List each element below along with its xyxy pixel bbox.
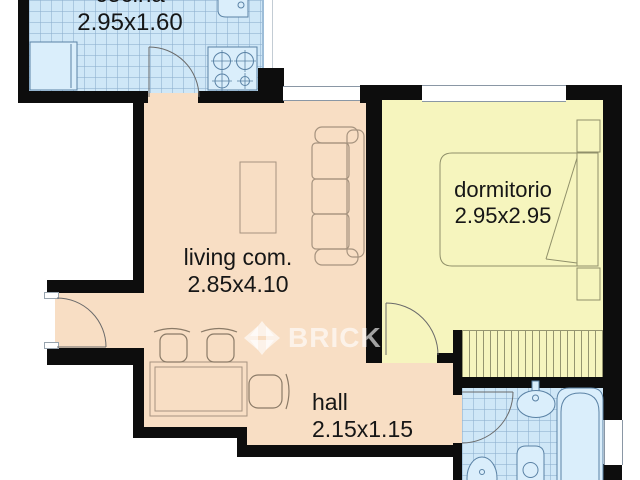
window-living-icon <box>283 86 360 101</box>
brand-logo-icon <box>243 320 281 356</box>
wall <box>133 365 144 435</box>
room-label-living: living com. 2.85x4.10 <box>158 244 318 297</box>
room-dimensions: 2.85x4.10 <box>158 271 318 298</box>
room-label-dormitorio: dormitorio 2.95x2.95 <box>423 177 583 228</box>
wall <box>243 445 462 457</box>
wall <box>47 280 144 293</box>
wall <box>603 464 622 480</box>
brand-name: BRICK <box>288 322 382 354</box>
floor-bathroom <box>462 387 603 480</box>
door-jamb <box>44 292 59 299</box>
wall <box>603 88 622 420</box>
room-name: dormitorio <box>454 177 552 202</box>
brand-watermark: BRICK <box>243 320 382 356</box>
wall <box>18 91 148 103</box>
room-name: cocina <box>95 0 164 8</box>
floor-entry-nook <box>55 292 144 348</box>
wall <box>18 0 29 103</box>
wall <box>133 93 144 292</box>
door-jamb <box>44 342 59 349</box>
window-bedroom-icon <box>422 85 566 102</box>
wardrobe-icon <box>462 330 603 378</box>
room-name: hall <box>312 389 348 415</box>
room-dimensions: 2.95x2.95 <box>423 203 583 229</box>
wall <box>47 348 144 365</box>
room-name: living com. <box>184 244 293 270</box>
room-dimensions: 2.95x1.60 <box>55 9 205 37</box>
wall <box>258 68 284 103</box>
window-bathroom-icon <box>604 420 623 465</box>
room-label-cocina: cocina 2.95x1.60 <box>55 0 205 37</box>
wall <box>133 427 243 438</box>
wall <box>453 377 603 388</box>
floor-plan: cocina 2.95x1.60 living com. 2.85x4.10 d… <box>0 0 640 480</box>
floor-kitchen-doorway <box>148 93 198 103</box>
room-label-hall: hall 2.15x1.15 <box>312 389 413 442</box>
room-dimensions: 2.15x1.15 <box>312 416 413 443</box>
floor-bedroom-doorway <box>382 353 437 363</box>
